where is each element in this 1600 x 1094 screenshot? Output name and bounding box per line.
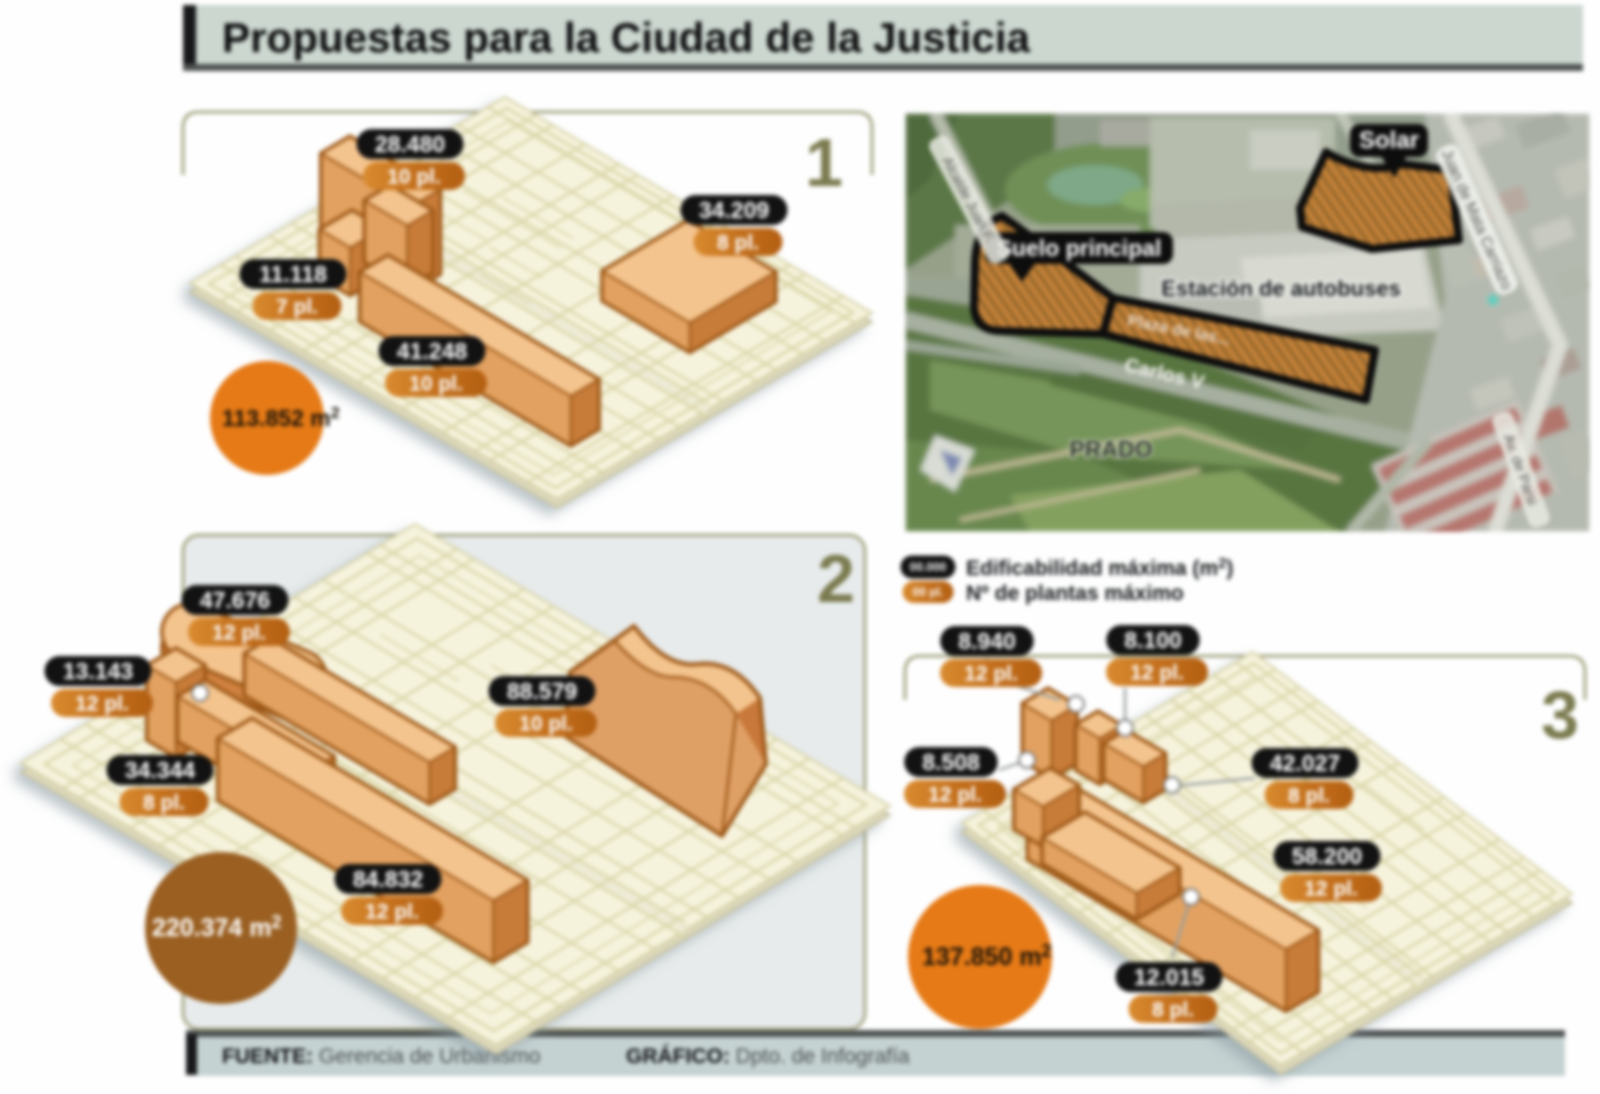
svg-text:8 pl.: 8 pl. [717,231,759,254]
svg-text:8 pl.: 8 pl. [1152,998,1194,1021]
svg-text:13.143: 13.143 [63,658,133,684]
svg-text:88.579: 88.579 [507,678,577,704]
svg-text:10 pl.: 10 pl. [387,165,441,188]
svg-text:8 pl.: 8 pl. [1288,784,1330,807]
svg-text:Edificabilidad máxima (m2): Edificabilidad máxima (m2) [966,555,1233,580]
svg-text:220.374 m2: 220.374 m2 [152,912,282,942]
svg-text:00 pl.: 00 pl. [913,585,944,599]
svg-text:12 pl.: 12 pl. [75,692,129,715]
svg-text:84.832: 84.832 [353,866,423,892]
svg-text:1: 1 [805,125,843,201]
svg-text:12 pl.: 12 pl. [212,621,266,644]
svg-text:11.118: 11.118 [259,261,327,287]
svg-text:2: 2 [817,541,855,617]
svg-text:34.344: 34.344 [125,757,196,783]
svg-text:137.850 m2: 137.850 m2 [922,941,1052,971]
svg-text:GRÁFICO: Dpto. de Infografía: GRÁFICO: Dpto. de Infografía [626,1045,910,1068]
svg-text:Nº de plantas máximo: Nº de plantas máximo [966,582,1184,605]
svg-text:3: 3 [1541,677,1579,753]
svg-text:8 pl.: 8 pl. [143,791,185,814]
svg-text:42.027: 42.027 [1270,750,1340,776]
svg-text:8.940: 8.940 [958,628,1016,654]
svg-text:12 pl.: 12 pl. [1130,661,1184,684]
svg-text:12.015: 12.015 [1134,964,1205,990]
svg-text:8.100: 8.100 [1124,627,1182,653]
svg-text:Suelo principal: Suelo principal [997,235,1162,261]
svg-text:47.676: 47.676 [200,587,270,613]
svg-text:12 pl.: 12 pl. [928,783,982,806]
svg-text:10 pl.: 10 pl. [519,712,573,735]
svg-text:34.209: 34.209 [699,197,769,223]
svg-text:8.508: 8.508 [922,749,980,775]
svg-text:12 pl.: 12 pl. [1304,877,1358,900]
svg-text:113.852 m2: 113.852 m2 [222,405,340,431]
svg-text:12 pl.: 12 pl. [964,662,1018,685]
svg-text:Solar: Solar [1359,127,1419,154]
svg-text:12 pl.: 12 pl. [365,900,419,923]
svg-text:Propuestas para la Ciudad de l: Propuestas para la Ciudad de la Justicia [222,14,1031,61]
svg-text:Estación de autobuses: Estación de autobuses [1161,276,1401,301]
svg-text:00.000: 00.000 [910,560,947,574]
svg-text:10 pl.: 10 pl. [409,372,463,395]
svg-text:7 pl.: 7 pl. [276,295,318,318]
svg-text:28.480: 28.480 [375,131,445,157]
svg-text:PRADO: PRADO [1069,436,1152,462]
svg-text:41.248: 41.248 [397,338,468,364]
svg-text:58.200: 58.200 [1292,843,1362,869]
